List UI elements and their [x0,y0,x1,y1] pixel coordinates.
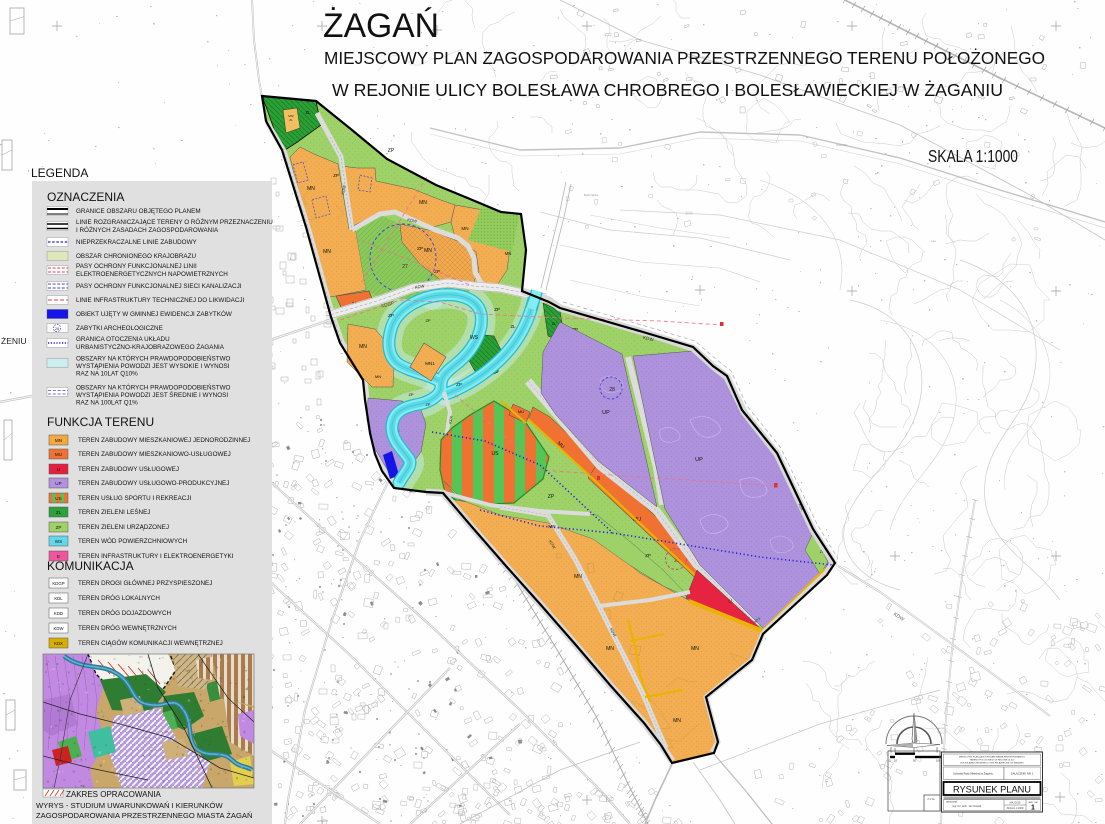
svg-text:TEREN WÓD POWIERZCHNIOWYCH: TEREN WÓD POWIERZCHNIOWYCH [78,536,188,545]
svg-text:ZL: ZL [56,510,62,515]
svg-text:Osa Wsi: Osa Wsi [836,143,848,147]
svg-text:MN: MN [673,718,681,724]
svg-text:MIEJSCOWY PLAN ZAGOSPODAROWANI: MIEJSCOWY PLAN ZAGOSPODAROWANIA PRZESTRZ… [959,756,1025,759]
svg-text:KOMUNIKACJA: KOMUNIKACJA [47,559,134,573]
svg-text:LINIE INFRASTRUKTURY TECHNICZN: LINIE INFRASTRUKTURY TECHNICZNEJ DO LIKW… [76,297,245,304]
svg-text:U: U [57,467,60,472]
svg-text:ZP: ZP [456,382,462,387]
svg-text:ZL: ZL [305,110,311,115]
svg-text:MN1: MN1 [425,361,435,366]
svg-text:ZP: ZP [425,318,430,323]
svg-text:UP: UP [55,481,61,486]
svg-text:MN: MN [307,186,315,192]
svg-text:FUNKCJA TERENU: FUNKCJA TERENU [47,415,154,429]
svg-text:28: 28 [55,327,59,331]
svg-text:LEGENDA: LEGENDA [31,166,88,180]
svg-text:Las: Las [931,239,936,243]
svg-text:ZP: ZP [388,313,394,318]
svg-text:TEREN ZABUDOWY MIESZKANIOWO-US: TEREN ZABUDOWY MIESZKANIOWO-USŁUGOWEJ [78,451,231,458]
svg-text:TEREN ZIELENI URZĄDZONEJ: TEREN ZIELENI URZĄDZONEJ [78,524,169,531]
svg-text:ZP: ZP [548,494,555,500]
svg-text:MAJ 2019: MAJ 2019 [1010,802,1021,805]
svg-text:TEREN DRÓG LOKALNYCH: TEREN DRÓG LOKALNYCH [78,593,160,602]
svg-text:TEREN ZIELENI LEŚNEJ: TEREN ZIELENI LEŚNEJ [78,507,150,516]
svg-text:ELEKTROENERGETYCZNYCH NAPOWIE: ELEKTROENERGETYCZNYCH NAPOWIETRZNYCH [76,271,228,278]
svg-text:MU: MU [518,409,524,414]
svg-text:RAZ NA 10LAT Q10%: RAZ NA 10LAT Q10% [76,371,138,378]
svg-text:ZP: ZP [333,173,339,178]
svg-text:WS: WS [55,539,62,544]
svg-text:ZP: ZP [388,148,395,154]
svg-text:KDD: KDD [54,611,63,616]
svg-text:mgr inż. arch. Jan Nowak: mgr inż. arch. Jan Nowak [952,804,982,808]
svg-text:MN: MN [359,344,367,350]
svg-text:KDW: KDW [53,626,64,631]
svg-text:ZABYTKI ARCHEOLOGICZNE: ZABYTKI ARCHEOLOGICZNE [76,325,163,332]
svg-text:TEREN ZABUDOWY USŁUGOWEJ: TEREN ZABUDOWY USŁUGOWEJ [78,466,179,473]
svg-text:PASY OCHRONY FUNKCJONALNEJ LIN: PASY OCHRONY FUNKCJONALNEJ LINII [76,263,197,270]
svg-text:OBSZARY NA KTÓRYCH PRAWDOPODOB: OBSZARY NA KTÓRYCH PRAWDOPODOBIEŃSTWO [76,382,231,391]
svg-text:KDL: KDL [54,596,63,601]
svg-text:28: 28 [609,387,615,393]
svg-text:UP: UP [695,457,703,463]
svg-text:KDX: KDX [54,641,63,646]
svg-text:U: U [728,599,732,605]
svg-text:MN: MN [323,249,331,255]
svg-text:GRANICA OTOCZENIA UKŁADU: GRANICA OTOCZENIA UKŁADU [76,336,170,343]
svg-text:SKALA 1:1000: SKALA 1:1000 [1007,806,1024,810]
svg-text:KDGP: KDGP [52,581,64,586]
svg-text:ZAGOSPODAROWANIA PRZESTRZENNEG: ZAGOSPODAROWANIA PRZESTRZENNEGO MIASTA Ż… [36,811,252,820]
svg-text:TEREN DRÓG WEWNĘTRZNYCH: TEREN DRÓG WEWNĘTRZNYCH [78,623,177,632]
svg-text:WYSTĄPIENIA POWODZI JEST WYSOK: WYSTĄPIENIA POWODZI JEST WYSOKIE I WYNOS… [76,363,230,370]
svg-text:ZAŁĄCZNIK NR 1: ZAŁĄCZNIK NR 1 [1011,772,1034,776]
svg-text:OBIEKT UJĘTY W GMINNEJ EWIDENC: OBIEKT UJĘTY W GMINNEJ EWIDENCJI ZABYTKÓ… [76,309,232,318]
svg-text:SKALA 1:1000: SKALA 1:1000 [928,146,1018,166]
svg-text:TEREN ZABUDOWY USŁUGOWO-PRODUK: TEREN ZABUDOWY USŁUGOWO-PRODUKCYJNEJ [78,480,229,487]
svg-text:ZP: ZP [645,553,651,558]
svg-text:BOLESŁAWA CHROBREGO I BOLESŁAW: BOLESŁAWA CHROBREGO I BOLESŁAWIECKIEJ W … [960,762,1024,765]
svg-text:MN: MN [691,646,699,652]
svg-text:ZL: ZL [289,118,293,122]
svg-text:GRANICE OBSZARU OBJĘTEGO PLAN: GRANICE OBSZARU OBJĘTEGO PLANEM [76,208,201,215]
svg-text:PASY OCHRONY FUNKCJONALNEJ SIE: PASY OCHRONY FUNKCJONALNEJ SIECI KANALIZ… [76,283,242,290]
svg-text:ZP: ZP [56,525,62,530]
svg-text:ZP: ZP [434,269,440,274]
svg-text:ZP: ZP [417,246,423,251]
svg-text:opracował:: opracował: [946,801,958,804]
svg-text:MN: MN [461,226,468,231]
svg-text:TEREN CIĄGÓW KOMUNIKACJI WEWNĘ: TEREN CIĄGÓW KOMUNIKACJI WEWNĘTRZNEJ [78,638,223,647]
svg-text:WYRYS - STUDIUM UWARUNKOWAŃ I: WYRYS - STUDIUM UWARUNKOWAŃ I KIERUNKÓW [36,801,223,810]
svg-text:Bobrzanka: Bobrzanka [584,193,599,197]
svg-text:NIEPRZEKRACZALNE LINIE ZABUDOW: NIEPRZEKRACZALNE LINIE ZABUDOWY [76,239,198,246]
svg-text:RAZ NA 100LAT Q1%: RAZ NA 100LAT Q1% [76,400,138,407]
svg-text:TEREN USŁUG SPORTU I REKREACJ: TEREN USŁUG SPORTU I REKREACJI [78,495,191,502]
svg-text:MU: MU [55,452,62,457]
svg-text:URBANISTYCZNO-KRAJOBRAZOWEGO Ż: URBANISTYCZNO-KRAJOBRAZOWEGO ŻAGANIA [76,342,225,351]
svg-text:UP: UP [602,410,610,416]
svg-text:ZP: ZP [494,307,500,312]
svg-text:US: US [492,451,500,457]
svg-text:MN: MN [419,200,427,206]
svg-text:1: 1 [1031,805,1035,812]
svg-text:W REJONIE ULICY BOLESŁAWA: W REJONIE ULICY BOLESŁAWA CHROBREGO I BO… [332,80,1003,100]
svg-text:WYSTĄPIENIA POWODZI JEST ŚREDN: WYSTĄPIENIA POWODZI JEST ŚREDNIE I WYNOS… [76,390,228,399]
svg-text:WS: WS [470,335,479,341]
svg-text:MN: MN [424,248,432,254]
svg-text:ZL: ZL [510,324,516,329]
svg-text:I RÓŻNYCH ZASADACH ZAGOSPODARO: I RÓŻNYCH ZASADACH ZAGOSPODAROWANIA [76,225,219,234]
svg-text:TEREN DRÓG DOJAZDOWYCH: TEREN DRÓG DOJAZDOWYCH [78,608,172,617]
svg-text:TEREN ZABUDOWY MIESZKANIOWEJ J: TEREN ZABUDOWY MIESZKANIOWEJ JEDNORODZIN… [78,437,250,444]
svg-text:US: US [55,496,61,501]
svg-text:MN: MN [606,646,614,652]
svg-text:ŻENIU: ŻENIU [1,336,27,346]
svg-text:OBSZARY NA KTÓRYCH PRAWDOPODOB: OBSZARY NA KTÓRYCH PRAWDOPODOBIEŃSTWO [76,353,231,362]
svg-text:ZAKRES OPRACOWANIA: ZAKRES OPRACOWANIA [66,790,161,799]
svg-text:OBSZAR CHRONIONEGO KRAJOBRAZU: OBSZAR CHRONIONEGO KRAJOBRAZU [76,253,196,260]
svg-text:2.1 ha: 2.1 ha [927,797,935,801]
svg-text:RYSUNEK PLANU: RYSUNEK PLANU [953,785,1031,796]
svg-text:MN: MN [375,374,381,379]
svg-text:MN: MN [505,251,512,256]
svg-text:27: 27 [402,264,408,270]
svg-text:TERENU POŁOŻONEGO W REJONIE UL: TERENU POŁOŻONEGO W REJONIE ULICY [970,759,1016,762]
svg-text:MIEJSCOWY PLAN ZAGOSPODAROWANI: MIEJSCOWY PLAN ZAGOSPODAROWANIA PRZESTRZ… [324,48,1045,68]
svg-text:ZP: ZP [408,392,413,397]
svg-text:MN: MN [574,574,582,580]
svg-text:ŻAGAŃ: ŻAGAŃ [323,7,439,45]
svg-text:MN: MN [55,438,62,443]
svg-text:MN: MN [548,524,555,529]
svg-text:ZP: ZP [425,402,430,407]
svg-text:LINIE ROZGRANICZAJĄCE TERENY O: LINIE ROZGRANICZAJĄCE TERENY O RÓŻNYM PR… [76,217,273,226]
svg-text:TEREN DROGI GŁÓWNEJ PRZYSPIESZ: TEREN DROGI GŁÓWNEJ PRZYSPIESZONEJ [78,578,212,587]
svg-text:ZL: ZL [552,321,557,326]
svg-text:OZNACZENIA: OZNACZENIA [47,190,124,204]
